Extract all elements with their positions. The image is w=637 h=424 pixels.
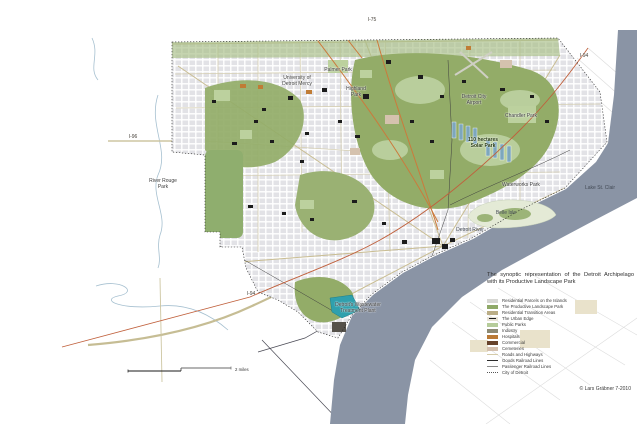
legend-swatch-hospitals: [487, 335, 498, 339]
legend-label: Commercial: [502, 341, 525, 345]
credit-text: © Lars Gräbner 7-2010: [580, 386, 632, 392]
scale-bar-label: 2 miles: [235, 367, 249, 372]
legend-label: The Urban Edge: [502, 317, 534, 321]
legend-label: Residential Transition Areas: [502, 311, 555, 315]
legend-swatch-industry: [487, 329, 498, 333]
legend-label: Goods Railroad Lines: [502, 359, 543, 363]
legend-swatch-passenger-railroad: [487, 366, 498, 367]
legend-swatch-goods-railroad: [487, 360, 498, 361]
legend-swatch-productive-landscape-park: [487, 305, 498, 309]
legend-label: Hospitals: [502, 335, 520, 339]
legend-label: The Productive Landscape Park: [502, 305, 563, 309]
legend-label: Passenger Railroad Lines: [502, 365, 551, 369]
legend-label: Cemeteries: [502, 347, 524, 351]
legend-label: Roads and Highways: [502, 353, 543, 357]
legend-swatch-public-parks: [487, 323, 498, 327]
legend-swatch-cemeteries: [487, 347, 498, 351]
legend-label: Residential Parcels on the Islands: [502, 299, 567, 303]
legend-label: Industry: [502, 329, 517, 333]
legend-swatch-residential-parcels: [487, 299, 498, 303]
legend-swatch-roads-highways: [487, 354, 498, 355]
legend-rows: Residential Parcels on the Islands The P…: [487, 298, 634, 376]
zug-island: [332, 322, 346, 332]
map-canvas: I-75 I-94 I-96 I-94 River Rouge Park Uni…: [0, 0, 637, 424]
legend-title: The synoptic representation of the Detro…: [487, 272, 634, 287]
scale-bar: [128, 367, 231, 373]
legend-row-city-of-detroit: City of Detroit: [487, 370, 634, 376]
legend-label: City of Detroit: [502, 371, 528, 375]
legend: The synoptic representation of the Detro…: [487, 272, 634, 376]
legend-swatch-commercial: [487, 341, 498, 345]
legend-label: Public Parks: [502, 323, 526, 327]
legend-swatch-city-of-detroit: [487, 372, 498, 373]
legend-swatch-residential-transition: [487, 311, 498, 315]
legend-swatch-urban-edge: [487, 317, 498, 321]
